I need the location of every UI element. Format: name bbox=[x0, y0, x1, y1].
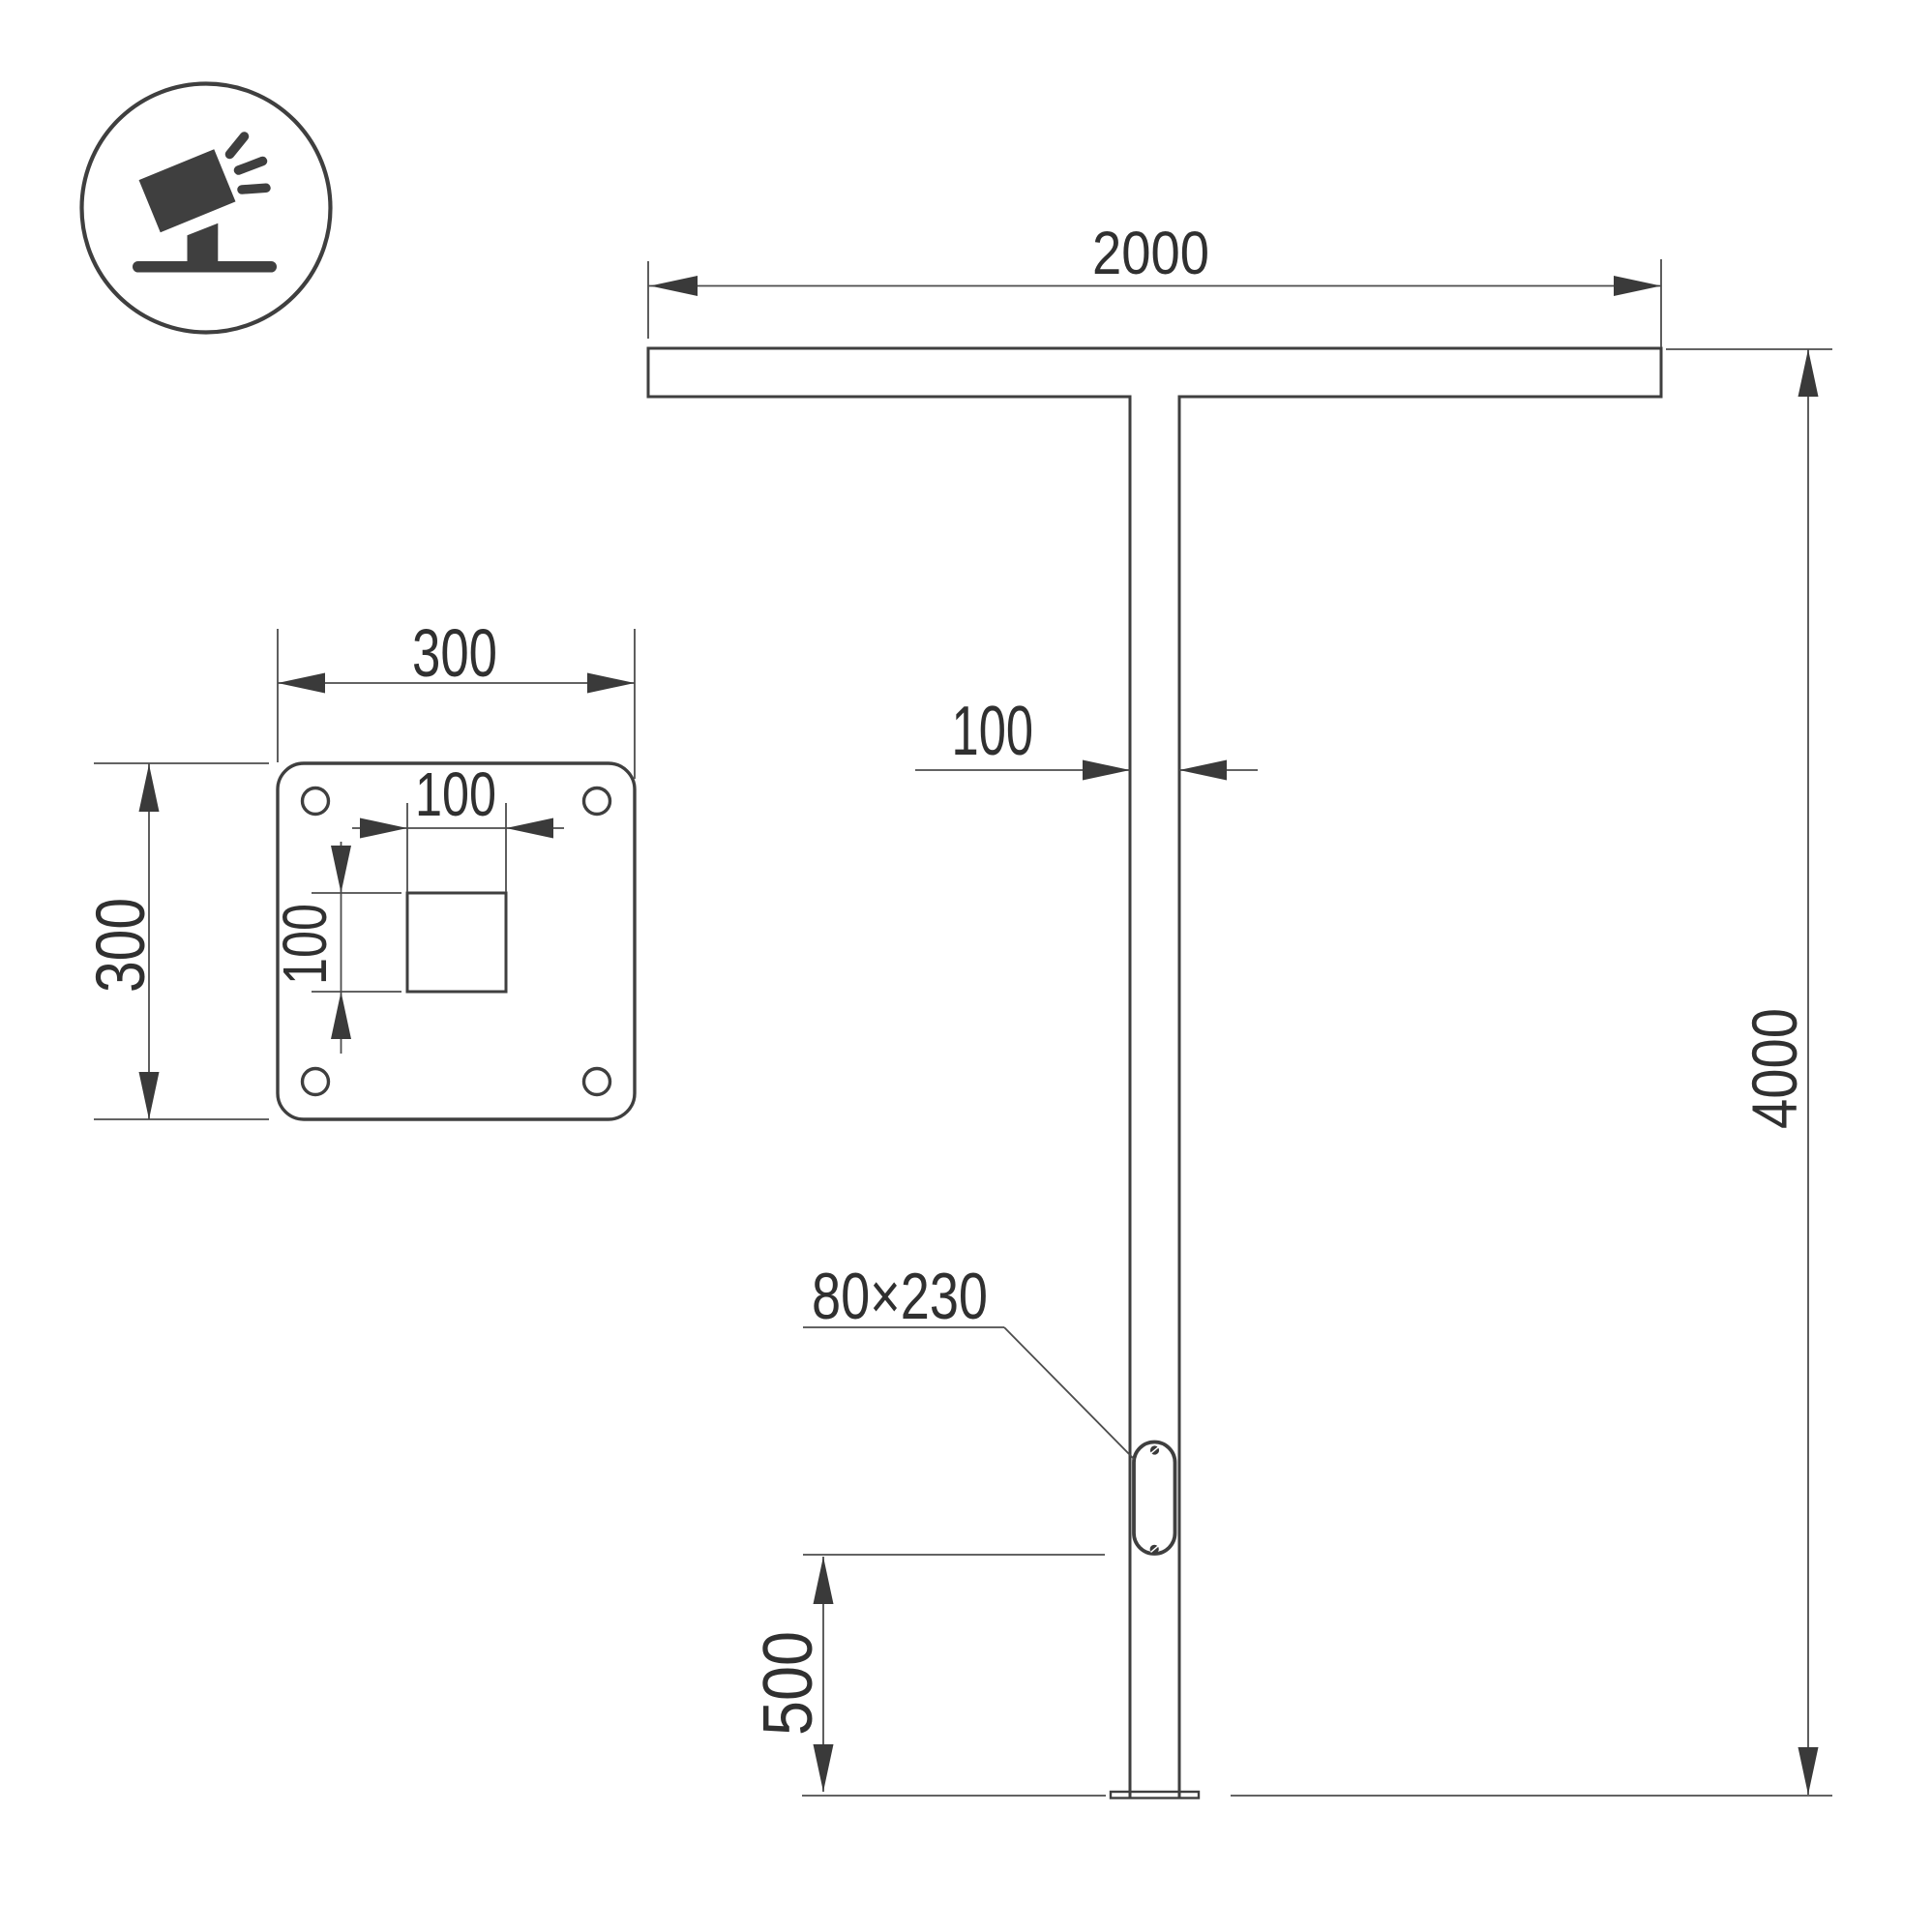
svg-text:500: 500 bbox=[750, 1631, 827, 1736]
svg-text:4000: 4000 bbox=[1739, 1008, 1810, 1129]
svg-text:80×230: 80×230 bbox=[812, 1260, 988, 1333]
svg-text:300: 300 bbox=[412, 615, 497, 691]
svg-text:100: 100 bbox=[415, 759, 496, 829]
svg-text:100: 100 bbox=[952, 693, 1034, 770]
svg-text:100: 100 bbox=[270, 904, 340, 985]
svg-text:300: 300 bbox=[83, 898, 160, 993]
svg-text:2000: 2000 bbox=[1092, 220, 1209, 287]
